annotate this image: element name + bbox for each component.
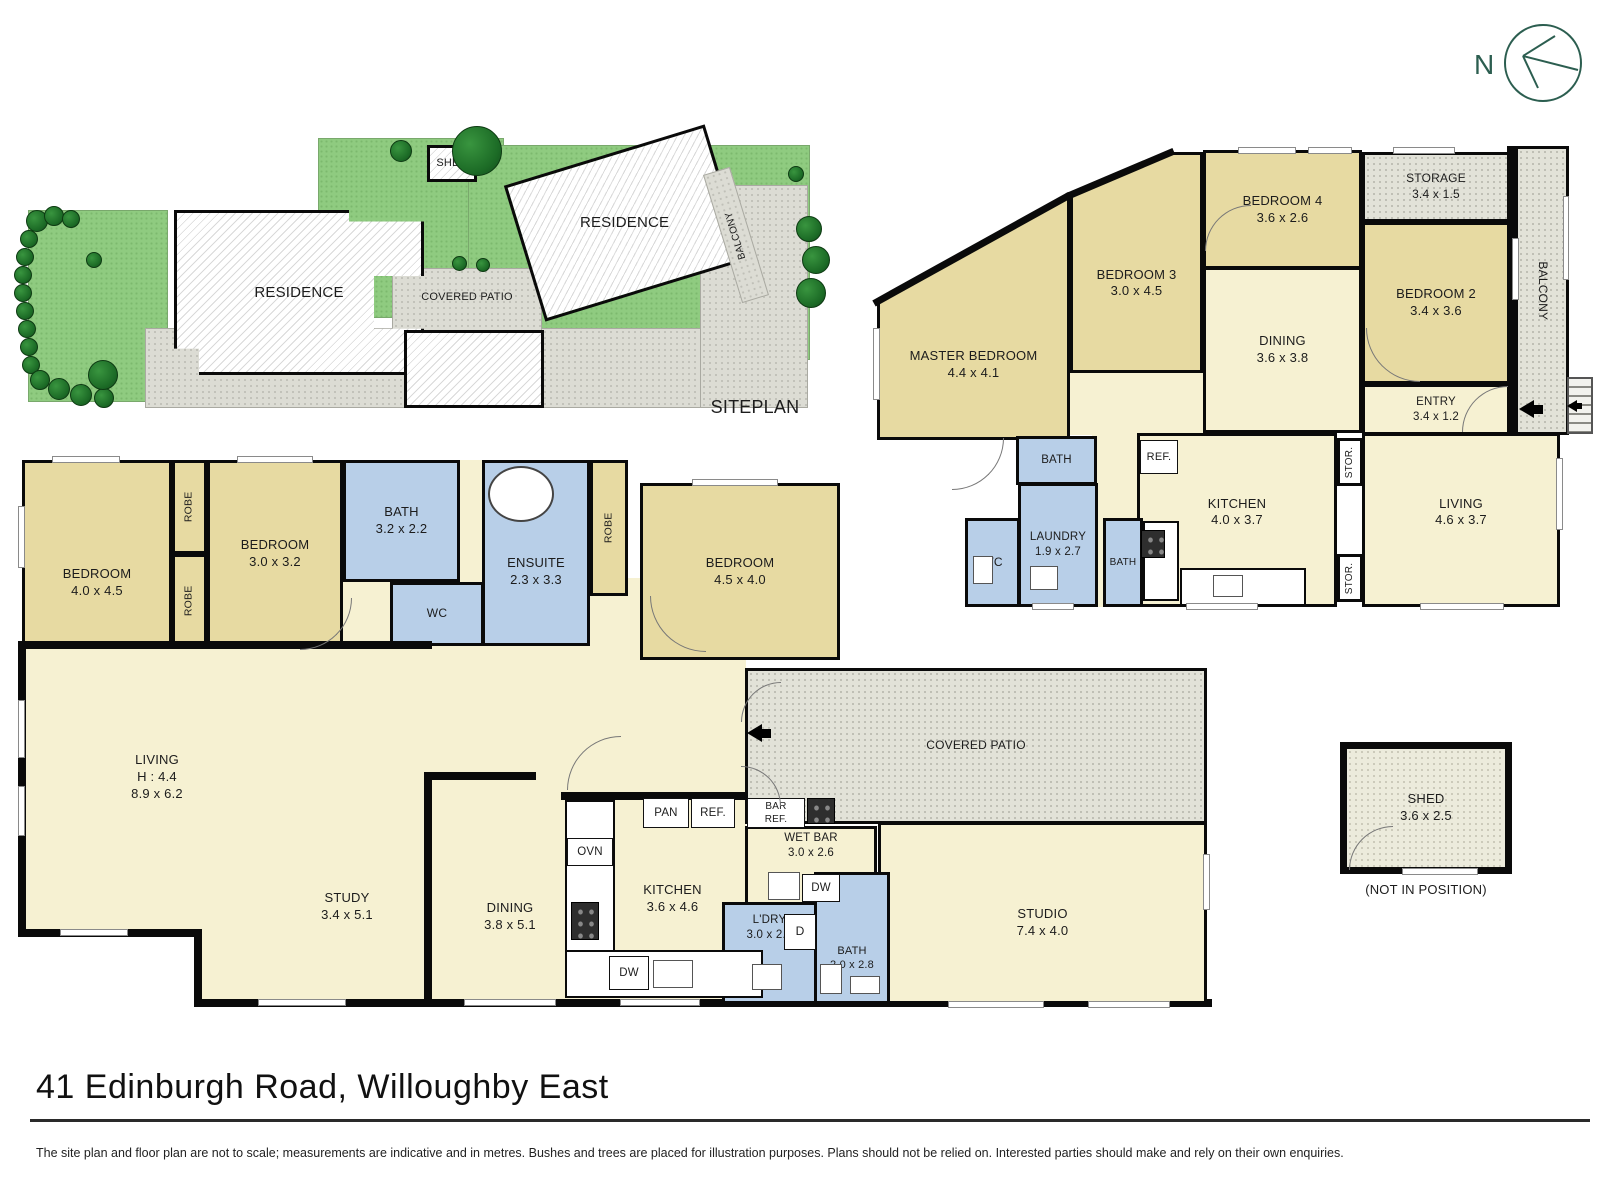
north-label: N bbox=[1474, 49, 1494, 80]
shed-label: SHED3.6 x 2.5 bbox=[1400, 791, 1452, 825]
north-compass: N bbox=[1438, 16, 1600, 131]
title-divider bbox=[30, 1119, 1590, 1122]
window bbox=[1402, 868, 1478, 875]
shed-caption-label: (NOT IN POSITION) bbox=[1365, 882, 1487, 899]
floorplan-page: RESIDENCERESIDENCEBALCONYSHEDCOVERED PAT… bbox=[0, 0, 1600, 1200]
page-title: 41 Edinburgh Road, Willoughby East bbox=[36, 1068, 609, 1107]
compass-circle bbox=[1505, 25, 1581, 101]
shed-plan: SHED3.6 x 2.5(NOT IN POSITION) bbox=[0, 0, 1600, 1200]
shed-caption: (NOT IN POSITION) bbox=[1340, 882, 1512, 899]
disclaimer-text: The site plan and floor plan are not to … bbox=[36, 1146, 1576, 1160]
